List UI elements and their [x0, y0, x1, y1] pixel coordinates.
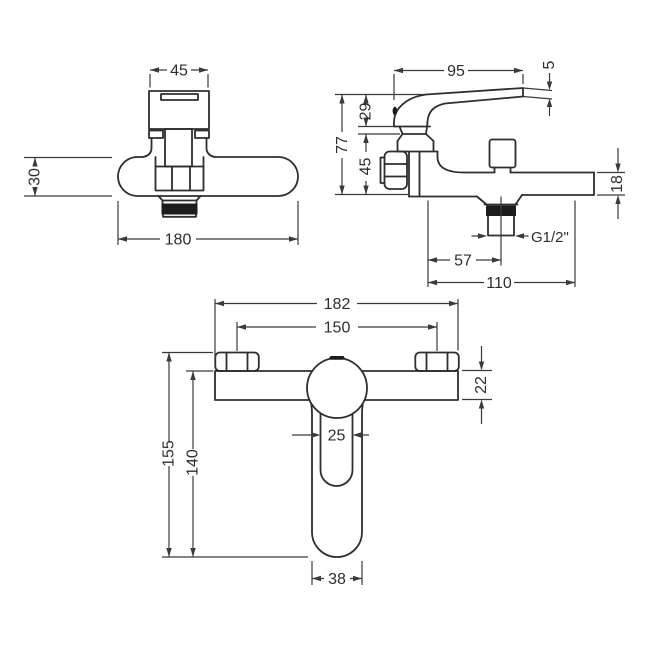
dim-arrow: [514, 68, 523, 73]
dim-arrow: [190, 371, 195, 380]
side-body-front: [438, 152, 465, 173]
top-body-bar: [215, 371, 458, 400]
front-collar-tab-left: [149, 131, 163, 139]
dim-arrow: [363, 186, 368, 195]
top-view-outline: [215, 353, 459, 558]
dim-front-180: 180: [118, 201, 298, 249]
dim-top-25: 25: [292, 428, 369, 445]
side-wall-nut-facets: [385, 164, 408, 177]
dim-label: 22: [473, 376, 490, 394]
dim-top-140: 140: [185, 371, 213, 557]
dim-label: 140: [185, 449, 202, 476]
top-wall-nut-left-facets: [227, 353, 248, 372]
dim-label: 95: [447, 63, 465, 80]
dim-arrow: [166, 353, 171, 362]
top-view-dimensions: 182 150 22 25: [161, 296, 492, 588]
front-escutcheon-left: [143, 138, 152, 157]
dim-label: 155: [161, 440, 178, 467]
dim-label: 150: [324, 320, 351, 337]
dim-label: 77: [334, 136, 351, 154]
dim-arrow: [615, 195, 620, 204]
top-wall-nut-right-facets: [427, 353, 448, 372]
dim-arrow: [479, 400, 484, 409]
dim-arrow: [312, 576, 321, 581]
dim-side-18: 18: [597, 148, 626, 219]
dim-label: 57: [454, 253, 472, 270]
side-lever-top: [394, 88, 523, 127]
side-indicator-dot: [393, 107, 398, 115]
dim-label: 25: [328, 428, 346, 445]
side-wall-nut: [385, 152, 408, 190]
dim-arrow: [199, 67, 208, 72]
dim-arrow: [428, 280, 437, 285]
dim-label: 38: [328, 571, 346, 588]
top-cartridge-circle: [307, 358, 367, 418]
top-view: 182 150 22 25: [161, 296, 492, 588]
dim-label: 45: [358, 158, 375, 176]
dim-arrow: [237, 324, 246, 329]
dim-top-38: 38: [312, 561, 362, 588]
dim-arrow: [547, 99, 552, 108]
dim-arrow: [150, 67, 159, 72]
dim-arrow: [547, 82, 552, 91]
dim-label: G1/2": [531, 229, 569, 246]
top-handle-slot: [321, 414, 353, 487]
dim-side-29: 29: [358, 95, 393, 127]
dim-front-30: 30: [24, 158, 112, 197]
dim-label: 29: [358, 103, 375, 121]
dim-arrow: [615, 164, 620, 173]
dim-label: 180: [165, 232, 192, 249]
dim-top-150: 150: [237, 320, 437, 351]
dim-label: 5: [541, 60, 558, 69]
front-valve-body: [172, 167, 190, 191]
dim-side-77: 77: [334, 95, 424, 195]
dim-arrow: [515, 233, 524, 238]
front-escutcheon-inner: [156, 157, 204, 191]
dim-arrow: [428, 257, 437, 262]
dim-top-155: 155: [161, 353, 308, 558]
side-lever-bottom: [427, 97, 523, 127]
dim-arrow: [118, 236, 127, 241]
dim-arrow: [363, 95, 368, 104]
dim-label: 18: [609, 175, 626, 193]
side-view-dimensions: 95 5 77: [334, 60, 626, 292]
dim-front-45: 45: [150, 63, 208, 88]
dim-arrow: [312, 432, 321, 437]
technical-drawing-page: 45 30 180: [0, 0, 650, 650]
dim-arrow: [394, 68, 403, 73]
dim-arrow: [449, 301, 458, 306]
ext-line: [523, 88, 552, 99]
front-handle-cap: [149, 91, 209, 129]
dim-arrow: [190, 548, 195, 557]
front-outlet-thread: [162, 204, 198, 215]
front-outlet-lip: [163, 215, 196, 217]
top-wall-nut-right: [415, 353, 459, 372]
side-spout-end: [522, 173, 594, 196]
front-view-outline: [118, 91, 298, 217]
front-view: 45 30 180: [24, 63, 298, 249]
dim-label: 45: [170, 63, 188, 80]
dim-arrow: [478, 233, 487, 238]
dim-arrow: [32, 158, 37, 167]
dim-label: 30: [27, 168, 44, 186]
dim-arrow: [492, 257, 501, 262]
dim-label: 182: [324, 296, 351, 313]
dim-arrow: [428, 324, 437, 329]
side-outlet-flare: [477, 195, 522, 205]
top-wall-nut-left: [215, 353, 258, 372]
front-escutcheon-right: [207, 138, 216, 157]
front-collar-tab-right: [195, 131, 209, 139]
side-diverter-knob: [490, 140, 516, 168]
side-body-upper: [398, 141, 438, 152]
dim-arrow: [166, 548, 171, 557]
side-body-flare: [398, 134, 434, 141]
dim-arrow: [566, 280, 575, 285]
dim-top-22: 22: [462, 346, 492, 424]
side-wall-plate: [409, 152, 420, 197]
front-outlet-flare: [159, 196, 201, 204]
dim-label: 110: [486, 275, 512, 292]
front-cartridge: [165, 129, 192, 167]
dim-arrow: [479, 362, 484, 371]
front-body-pill: [118, 157, 298, 196]
dim-arrow: [289, 236, 298, 241]
front-handle-notch: [161, 94, 198, 100]
dim-arrow: [363, 134, 368, 143]
dim-arrow: [339, 186, 344, 195]
dim-arrow: [353, 432, 362, 437]
dim-arrow: [32, 187, 37, 196]
dim-side-5: 5: [523, 60, 558, 116]
side-view: 95 5 77: [334, 60, 626, 292]
side-collar: [400, 127, 428, 135]
top-index-mark: [330, 356, 345, 360]
dim-arrow: [339, 95, 344, 104]
bath-mixer-dimension-drawing: 45 30 180: [0, 0, 650, 650]
dim-arrow: [215, 301, 224, 306]
dim-side-thread: G1/2": [472, 229, 569, 246]
dim-arrow: [353, 576, 362, 581]
